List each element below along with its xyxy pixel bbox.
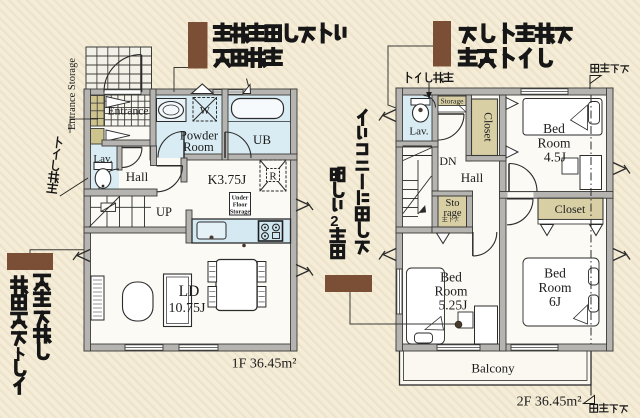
svg-text:K3.75J: K3.75J bbox=[208, 172, 247, 187]
svg-text:Storage: Storage bbox=[230, 209, 251, 216]
svg-text:Under: Under bbox=[232, 195, 249, 202]
svg-text:1F 36.45m²: 1F 36.45m² bbox=[232, 357, 297, 372]
svg-text:Bed: Bed bbox=[544, 266, 566, 281]
svg-text:DN: DN bbox=[439, 154, 457, 168]
svg-text:4.5J: 4.5J bbox=[544, 150, 566, 165]
svg-text:Floor: Floor bbox=[233, 202, 248, 209]
svg-text:Bed: Bed bbox=[440, 270, 462, 285]
svg-text:Room: Room bbox=[538, 280, 572, 295]
svg-text:UP: UP bbox=[156, 205, 172, 219]
svg-text:Storage: Storage bbox=[441, 96, 465, 105]
svg-text:Room: Room bbox=[183, 140, 214, 154]
svg-text:Bed: Bed bbox=[543, 121, 565, 136]
svg-text:10.75J: 10.75J bbox=[169, 301, 207, 316]
svg-text:Lav.: Lav. bbox=[409, 126, 428, 138]
svg-text:5.25J: 5.25J bbox=[439, 298, 468, 313]
svg-text:R: R bbox=[269, 171, 277, 183]
svg-text:Hall: Hall bbox=[126, 169, 149, 184]
svg-text:Closet: Closet bbox=[555, 202, 586, 216]
svg-text:Lav.: Lav. bbox=[93, 153, 112, 165]
svg-text:Hall: Hall bbox=[461, 170, 484, 185]
svg-text:UB: UB bbox=[253, 132, 271, 147]
svg-text:W: W bbox=[200, 106, 210, 117]
svg-text:Entrance: Entrance bbox=[108, 106, 149, 118]
svg-text:2F 36.45m²: 2F 36.45m² bbox=[517, 395, 582, 410]
svg-text:LD: LD bbox=[179, 283, 200, 300]
svg-text:Balcony: Balcony bbox=[471, 361, 515, 376]
svg-text:Closet: Closet bbox=[482, 112, 494, 142]
svg-text:Room: Room bbox=[434, 284, 468, 299]
svg-text:6J: 6J bbox=[549, 294, 561, 309]
svg-text:Room: Room bbox=[537, 136, 571, 151]
